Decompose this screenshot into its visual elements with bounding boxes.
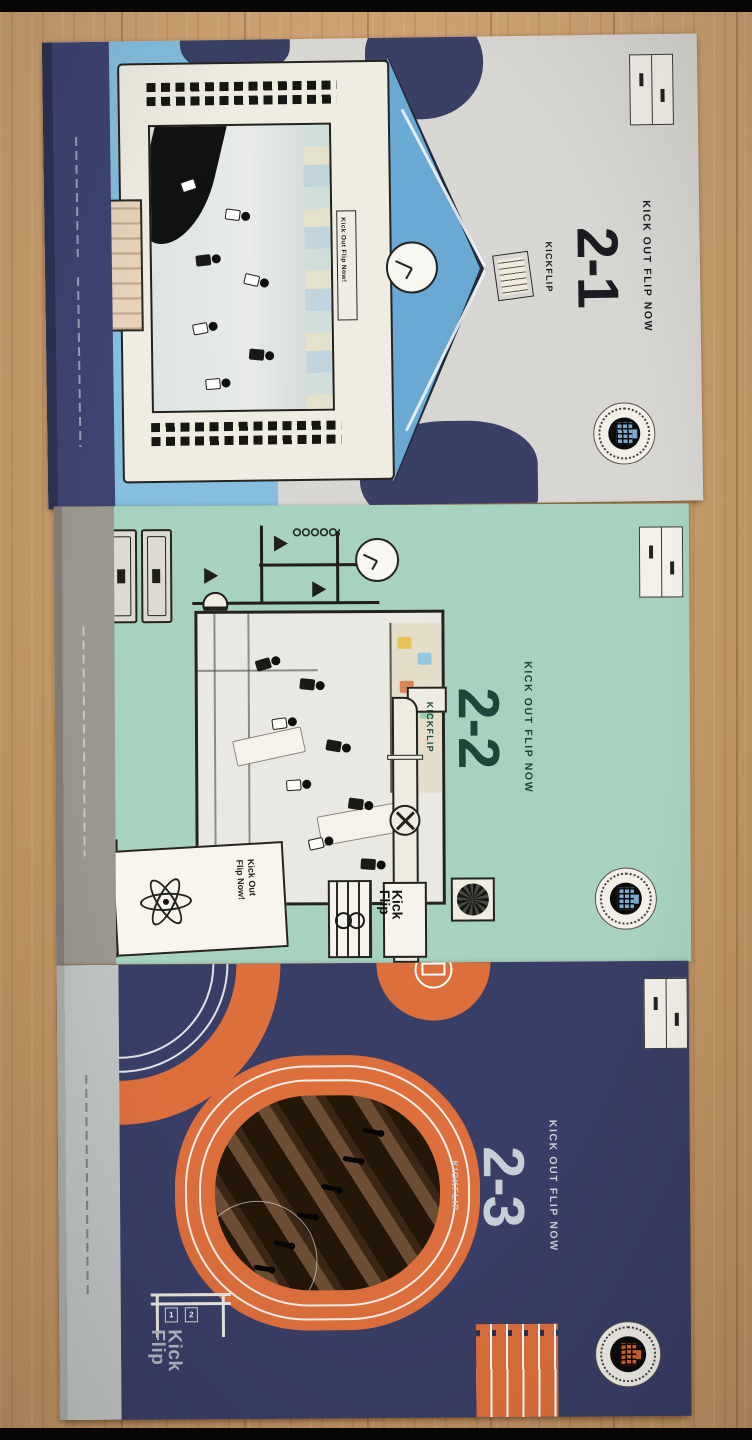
- sign-label: Kick Out Flip Now!: [244, 859, 260, 938]
- coil-tube-icon: [292, 527, 340, 538]
- kick-out-flip-now-banner: Kick Out Flip Now!: [336, 210, 358, 320]
- photo-figure: [225, 208, 251, 222]
- photo-figure: [325, 739, 351, 754]
- artist-name: KICKFLIP: [449, 1074, 461, 1298]
- pipe-flange: [387, 755, 423, 760]
- letterbox-bar-top: [0, 0, 752, 12]
- album-cover-2-3: 1 2 Kick Flip KICK OUT FLIP NOW 2-3 KICK…: [56, 961, 691, 1420]
- letterbox-bar-bottom: [0, 1428, 752, 1440]
- badge-center: [610, 883, 642, 915]
- photo-background-wall: [303, 125, 333, 413]
- window-grid: [146, 80, 336, 107]
- clock-icon: [355, 538, 399, 582]
- school-building-icon: [620, 1343, 636, 1365]
- funnel-icon: [312, 581, 326, 597]
- photo-figure: [195, 253, 221, 267]
- library-card-tag: [629, 54, 674, 126]
- photo-figure: [362, 1127, 380, 1135]
- photo-figure: [192, 320, 219, 335]
- album-number: 2-3: [469, 1074, 538, 1298]
- lane-number: 1: [165, 1307, 178, 1322]
- kickflip-logo-text: Kick Flip: [165, 1329, 182, 1417]
- funnel-icon: [204, 568, 218, 584]
- album-number: 2-2: [444, 614, 512, 840]
- photo-figure: [342, 1156, 360, 1164]
- banner-label: Kick Out Flip Now!: [339, 217, 347, 282]
- badge-center: [608, 417, 640, 449]
- atom-signboard: Kick Out Flip Now!: [111, 841, 289, 957]
- title-block: KICK OUT FLIP NOW 2-3 KICKFLIP: [446, 1074, 560, 1299]
- lane-number: 2: [185, 1307, 198, 1322]
- photo-figure: [286, 778, 312, 791]
- photo-figure: [299, 678, 325, 691]
- photo-desk: [232, 726, 306, 766]
- album-header-text: KICK OUT FLIP NOW: [546, 1074, 560, 1298]
- vent-fan-icon: [451, 877, 495, 921]
- lab-stand-line: [336, 531, 339, 603]
- photo-figure: [308, 835, 335, 851]
- basketball-halfcourt-icon: [376, 962, 490, 1021]
- album-header-text: KICK OUT FLIP NOW: [639, 152, 654, 380]
- badge-center: [610, 1336, 646, 1372]
- photo-figure: [205, 377, 231, 390]
- photo-of-album-covers-on-wood-floor: Kick Out Flip Now! KICK OUT FLIP NOW 2-1…: [0, 0, 752, 1440]
- funnel-icon: [274, 535, 288, 551]
- dna-poster: [328, 880, 372, 958]
- album-spine: [56, 965, 121, 1420]
- photo-figure: [249, 348, 275, 361]
- valve-wheel-icon: [389, 805, 420, 836]
- artist-name: KICKFLIP: [542, 153, 555, 381]
- locker-illustration: [141, 529, 172, 623]
- photo-figure: [321, 1183, 339, 1192]
- album-header-text: KICK OUT FLIP NOW: [521, 614, 534, 840]
- school-seal-badge: [593, 402, 656, 465]
- atom-icon: [136, 872, 195, 931]
- photo-figure: [243, 273, 270, 289]
- library-card-tag: [639, 526, 683, 597]
- title-block: KICK OUT FLIP NOW 2-1 KICKFLIP: [535, 152, 654, 382]
- school-seal-badge: [595, 868, 657, 930]
- photo-figure: [360, 858, 386, 871]
- album-number: 2-1: [562, 152, 632, 381]
- school-seal-badge: [595, 1321, 661, 1387]
- school-building-icon: [618, 888, 634, 910]
- track-lanes-block: [476, 1324, 559, 1418]
- running-track-oval: [174, 1054, 481, 1331]
- kickflip-logo-poster: Kick Flip: [383, 882, 427, 958]
- group-photo-dance: [214, 1095, 440, 1292]
- group-photo-classroom: [148, 123, 335, 414]
- album-cover-2-2: Kick Out Flip Now! Kick Flip KICK OUT FL…: [54, 503, 691, 964]
- crumpled-note-illustration: [492, 251, 534, 301]
- lab-stand-line: [260, 526, 263, 604]
- school-building-icon: [616, 422, 632, 444]
- album-cover-2-1: Kick Out Flip Now! KICK OUT FLIP NOW 2-1…: [42, 33, 703, 509]
- artist-name: KICKFLIP: [424, 615, 435, 841]
- bulletin-chip: [397, 637, 411, 649]
- library-card-tag: [644, 978, 688, 1049]
- window-grid: [151, 420, 341, 447]
- title-block: KICK OUT FLIP NOW 2-2 KICKFLIP: [421, 614, 534, 841]
